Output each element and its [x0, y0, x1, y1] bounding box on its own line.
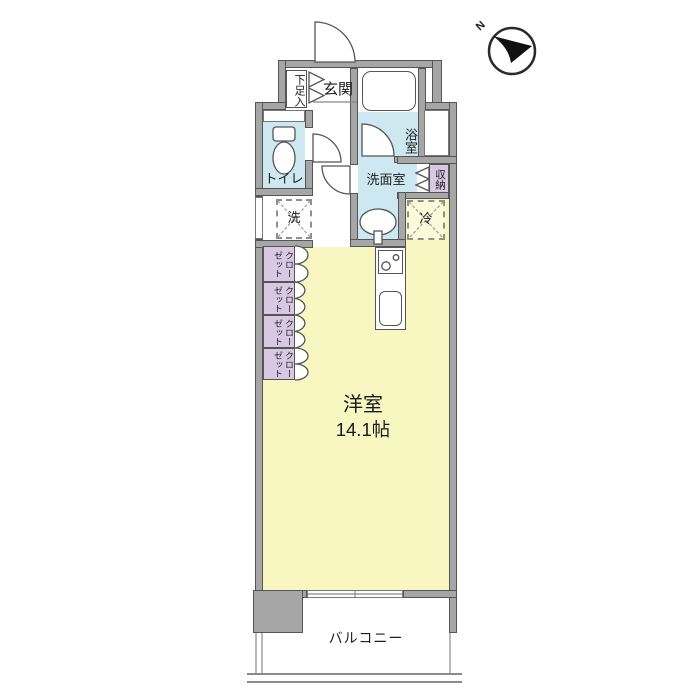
bathtub	[362, 71, 416, 111]
closet-label: クローゼット	[264, 249, 294, 280]
window	[255, 197, 263, 239]
shoe-cabinet-label: 下足入	[290, 72, 305, 108]
compass-north-arrow-icon	[493, 36, 532, 63]
stove	[378, 250, 403, 274]
wall	[449, 102, 457, 633]
kitchen-sink	[379, 291, 402, 326]
sliding-window	[307, 590, 403, 598]
wall	[253, 590, 303, 633]
closet-label: クローゼット	[264, 317, 294, 347]
window	[263, 110, 305, 122]
washroom-floor-lower	[358, 196, 398, 239]
balcony-edge-lines	[247, 674, 462, 682]
wall	[305, 110, 313, 128]
entrance-door-swing-icon	[315, 22, 355, 62]
wall	[350, 239, 406, 247]
storage-label: 収納	[432, 166, 446, 192]
wall	[278, 60, 442, 68]
main-room-name-label: 洋室	[293, 394, 433, 417]
washroom-door-swing-icon	[322, 166, 350, 194]
entrance-label: 玄関	[318, 81, 358, 98]
duct-space	[424, 110, 449, 156]
fridge-space-label: 冷	[407, 212, 445, 227]
toilet-door-swing-icon	[313, 134, 341, 162]
wall	[403, 590, 457, 598]
main-room-size-label: 14.1帖	[293, 419, 433, 440]
compass-north-label: N	[474, 19, 488, 34]
wall	[255, 188, 313, 196]
closet-label: クローゼット	[264, 350, 294, 379]
balcony-label: バルコニー	[306, 630, 426, 646]
wall	[255, 239, 263, 633]
washer-space-label: 洗	[276, 211, 312, 226]
closet-label: クローゼット	[264, 284, 294, 314]
toilet-label: トイレ	[262, 172, 306, 187]
storage-folding-door-icon	[416, 167, 429, 191]
compass-icon	[489, 28, 535, 74]
floor-plan: N 下足入 玄関 浴室 洗面室 収納 トイレ 洗 冷 クローゼット クローゼット…	[0, 0, 700, 700]
bathroom-label: 浴室	[401, 119, 417, 163]
washroom-label: 洗面室	[357, 173, 415, 188]
